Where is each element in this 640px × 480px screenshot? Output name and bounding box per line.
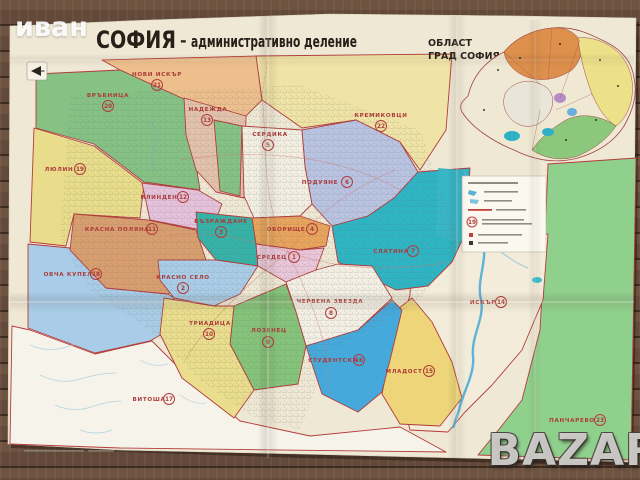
imprint-line	[88, 450, 114, 452]
svg-text:ВЪЗРАЖДАНЕ: ВЪЗРАЖДАНЕ	[194, 219, 248, 225]
legend-dot-symbol	[469, 241, 473, 245]
svg-text:3: 3	[219, 230, 223, 236]
svg-text:19: 19	[76, 167, 84, 173]
legend-text-bar	[496, 209, 526, 211]
legend-text-bar	[478, 234, 522, 236]
legend-text-bar	[484, 191, 518, 193]
settlement-dot	[617, 85, 619, 87]
svg-text:4: 4	[310, 227, 314, 233]
fold-crease-horizontal	[10, 54, 634, 66]
svg-text:ТРИАДИЦА: ТРИАДИЦА	[189, 321, 231, 327]
svg-text:10: 10	[205, 332, 213, 338]
svg-text:15: 15	[425, 369, 433, 375]
settlement-dot	[559, 43, 561, 45]
legend-number-sample: 19	[468, 220, 476, 226]
svg-text:КРАСНА ПОЛЯНА: КРАСНА ПОЛЯНА	[85, 227, 150, 233]
map-title-dash: -	[180, 31, 187, 50]
fold-crease-vertical	[258, 16, 278, 458]
imprint-line	[24, 450, 84, 452]
legend-text-bar	[484, 200, 512, 202]
legend-text-bar	[478, 242, 508, 244]
svg-text:8: 8	[329, 311, 333, 317]
svg-text:КРЕМИКОВЦИ: КРЕМИКОВЦИ	[354, 113, 407, 119]
svg-text:18: 18	[92, 272, 100, 278]
inset-zone-cyan	[504, 131, 520, 141]
svg-text:ВРЪБНИЦА: ВРЪБНИЦА	[87, 93, 129, 99]
inset-zone-blue	[567, 108, 577, 116]
svg-text:2: 2	[181, 286, 185, 292]
legend-text-bar	[482, 223, 532, 225]
svg-text:ОВЧА КУПЕЛ: ОВЧА КУПЕЛ	[44, 272, 93, 278]
inset-zone-cyan	[542, 128, 554, 136]
svg-text:СЛАТИНА: СЛАТИНА	[373, 249, 409, 255]
settlement-dot	[565, 139, 567, 141]
map-scene: СРЕДЕЦ 1 КРАСНО СЕЛО 2 ВЪЗРАЖДАНЕ 3 ОБОР…	[0, 0, 640, 480]
fold-crease-horizontal	[10, 292, 634, 312]
settlement-dot	[483, 109, 485, 111]
marketplace-watermark: BAZAR	[488, 425, 640, 476]
imprint	[24, 450, 114, 452]
svg-text:12: 12	[179, 195, 187, 201]
legend-title-bar	[468, 182, 518, 184]
svg-text:КРАСНО СЕЛО: КРАСНО СЕЛО	[156, 275, 210, 281]
map-title-city: СОФИЯ	[96, 26, 176, 54]
svg-text:НОВИ ИСКЪР: НОВИ ИСКЪР	[132, 72, 182, 78]
settlement-dot	[595, 119, 597, 121]
svg-text:17: 17	[165, 397, 173, 403]
svg-text:ИЛИНДЕН: ИЛИНДЕН	[140, 195, 177, 201]
svg-text:6: 6	[345, 180, 349, 186]
svg-text:13: 13	[203, 118, 211, 124]
svg-text:НАДЕЖДА: НАДЕЖДА	[189, 107, 228, 113]
svg-text:ПОДУЯНЕ: ПОДУЯНЕ	[302, 180, 338, 186]
photo-of-paper-map: СРЕДЕЦ 1 КРАСНО СЕЛО 2 ВЪЗРАЖДАНЕ 3 ОБОР…	[0, 0, 640, 480]
legend-text-bar	[482, 219, 524, 221]
svg-text:22: 22	[377, 124, 385, 130]
settlement-dot	[497, 69, 499, 71]
fold-crease-vertical	[448, 16, 466, 458]
legend-boundary-symbol	[468, 209, 492, 211]
svg-text:23: 23	[596, 418, 604, 424]
svg-text:7: 7	[411, 249, 415, 255]
fold-crease-vertical	[528, 20, 542, 458]
svg-text:21: 21	[153, 83, 161, 89]
svg-text:11: 11	[148, 227, 156, 233]
svg-text:1: 1	[292, 255, 296, 261]
svg-text:ЛЮЛИН: ЛЮЛИН	[45, 167, 74, 173]
svg-text:ВИТОША: ВИТОША	[133, 397, 166, 403]
legend-dot-symbol	[469, 233, 473, 237]
svg-text:СТУДЕНТСКА: СТУДЕНТСКА	[308, 358, 358, 364]
seller-watermark: иван	[15, 12, 88, 43]
svg-text:МЛАДОСТ: МЛАДОСТ	[385, 369, 422, 375]
svg-text:ПАНЧАРЕВО: ПАНЧАРЕВО	[549, 418, 595, 424]
svg-text:20: 20	[104, 104, 112, 110]
svg-text:16: 16	[355, 358, 363, 364]
